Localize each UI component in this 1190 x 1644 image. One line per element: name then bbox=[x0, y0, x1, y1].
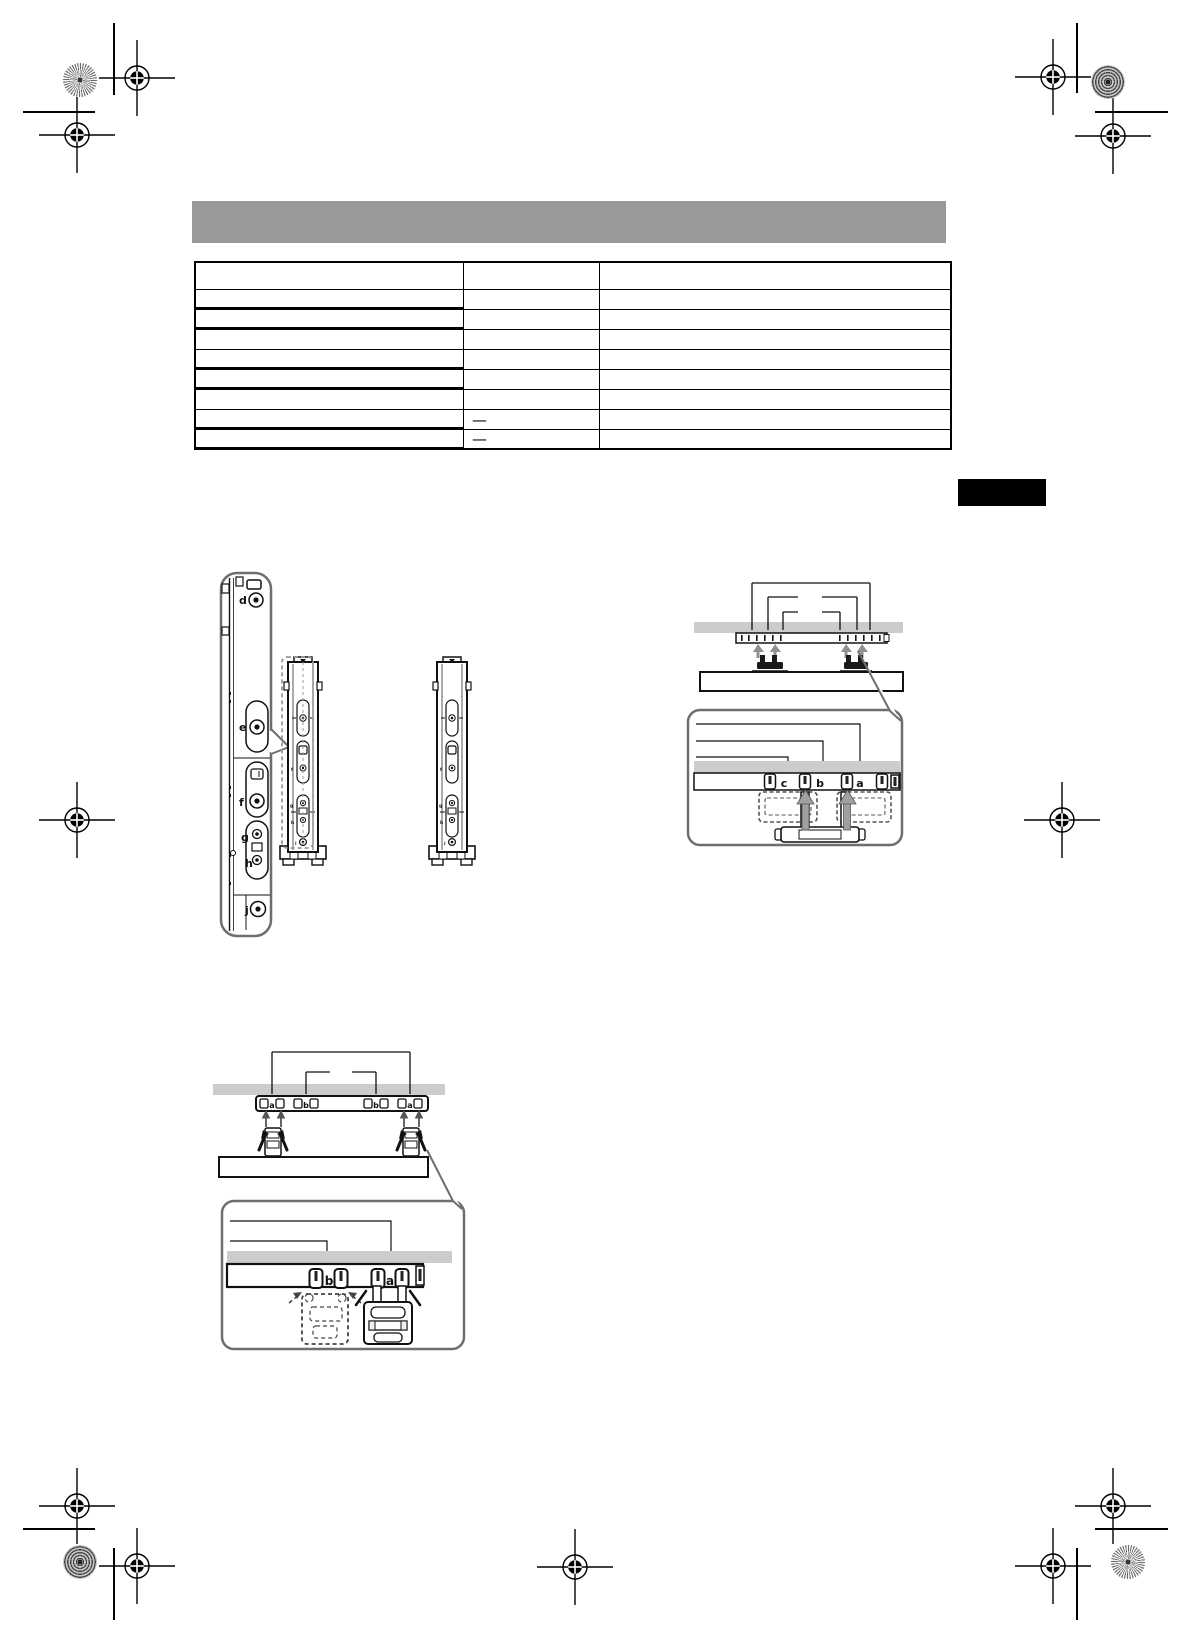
registration-mark bbox=[39, 782, 115, 858]
spec-table: — — bbox=[194, 261, 952, 450]
table-header-row bbox=[196, 263, 950, 290]
starburst-mark bbox=[1111, 1545, 1145, 1579]
hook-rail-diagram-top: c b a bbox=[650, 545, 915, 850]
table-cell bbox=[196, 263, 464, 290]
wall-mount-bracket-left bbox=[280, 657, 326, 865]
table-cell bbox=[600, 390, 950, 410]
table-cell bbox=[196, 410, 464, 430]
up-arrows-small bbox=[263, 1111, 423, 1127]
registration-mark bbox=[39, 97, 115, 173]
mounting-rail bbox=[736, 633, 889, 643]
table-cell bbox=[600, 290, 950, 310]
print-registration-marks bbox=[0, 0, 1190, 1644]
table-row bbox=[196, 290, 950, 310]
starburst-mark bbox=[63, 1545, 97, 1579]
table-row: — bbox=[196, 430, 950, 450]
page-index-tab bbox=[958, 479, 1046, 506]
table-cell bbox=[196, 370, 464, 390]
table-cell bbox=[196, 330, 464, 350]
registration-mark bbox=[39, 1468, 115, 1544]
manual-page: — — bbox=[0, 0, 1190, 1644]
table-cell bbox=[196, 350, 464, 370]
wall-bar bbox=[694, 622, 903, 633]
label-j: j bbox=[244, 904, 249, 917]
table-cell bbox=[196, 430, 464, 450]
label-g: g bbox=[241, 831, 249, 844]
bracket-diagram: f g h i bbox=[200, 540, 500, 950]
registration-mark bbox=[99, 40, 175, 116]
label-f: f bbox=[239, 796, 244, 809]
table-row bbox=[196, 350, 950, 370]
mounting-rail: a b b a bbox=[256, 1096, 428, 1111]
table-cell bbox=[464, 310, 600, 330]
table-row: — bbox=[196, 410, 950, 430]
table-cell bbox=[196, 390, 464, 410]
table-cell bbox=[600, 370, 950, 390]
table-cell bbox=[600, 310, 950, 330]
rail-label-b: b bbox=[373, 1101, 379, 1110]
table-cell: — bbox=[464, 410, 600, 430]
table-row bbox=[196, 390, 950, 410]
table-row bbox=[196, 310, 950, 330]
rail-label-a: a bbox=[407, 1101, 412, 1110]
hook-callout-balloon-bottom: b a bbox=[222, 1150, 464, 1349]
registration-mark bbox=[1075, 98, 1151, 174]
label-d: d bbox=[239, 594, 247, 607]
label-b: b bbox=[325, 1274, 334, 1288]
table-cell bbox=[464, 330, 600, 350]
table-cell bbox=[600, 430, 950, 450]
starburst-mark bbox=[1091, 65, 1125, 99]
table-cell bbox=[464, 350, 600, 370]
label-a: a bbox=[856, 777, 863, 790]
label-e: e bbox=[239, 721, 246, 734]
section-header-bar bbox=[192, 201, 946, 243]
registration-mark bbox=[1015, 1528, 1091, 1604]
bracket-callout-balloon: d e f g h bbox=[221, 573, 289, 936]
registration-mark bbox=[1075, 1468, 1151, 1544]
table-cell bbox=[600, 330, 950, 350]
label-h: h bbox=[245, 857, 253, 870]
table-cell bbox=[600, 263, 950, 290]
rail-label-a: a bbox=[269, 1101, 274, 1110]
table-cell bbox=[464, 390, 600, 410]
table-cell bbox=[464, 290, 600, 310]
registration-mark bbox=[1015, 39, 1091, 115]
label-b: b bbox=[816, 777, 824, 790]
hook-assembly-left bbox=[259, 1128, 287, 1156]
table-row bbox=[196, 330, 950, 350]
registration-mark bbox=[1024, 782, 1100, 858]
label-a: a bbox=[386, 1274, 394, 1288]
table-cell bbox=[196, 290, 464, 310]
table-cell bbox=[196, 310, 464, 330]
registration-mark bbox=[537, 1529, 613, 1605]
hook-assembly-right bbox=[397, 1128, 425, 1156]
tv-top-edge bbox=[219, 1157, 428, 1177]
table-row bbox=[196, 370, 950, 390]
table-cell bbox=[464, 263, 600, 290]
registration-mark bbox=[99, 1528, 175, 1604]
table-cell bbox=[600, 410, 950, 430]
hook-rail-diagram-bottom: a b b a bbox=[200, 1040, 470, 1360]
table-cell bbox=[600, 350, 950, 370]
rail-label-b: b bbox=[303, 1101, 309, 1110]
starburst-mark bbox=[63, 63, 97, 97]
table-cell: — bbox=[464, 430, 600, 450]
label-c: c bbox=[781, 777, 788, 790]
wall-mount-bracket-right bbox=[429, 657, 475, 865]
table-cell bbox=[464, 370, 600, 390]
